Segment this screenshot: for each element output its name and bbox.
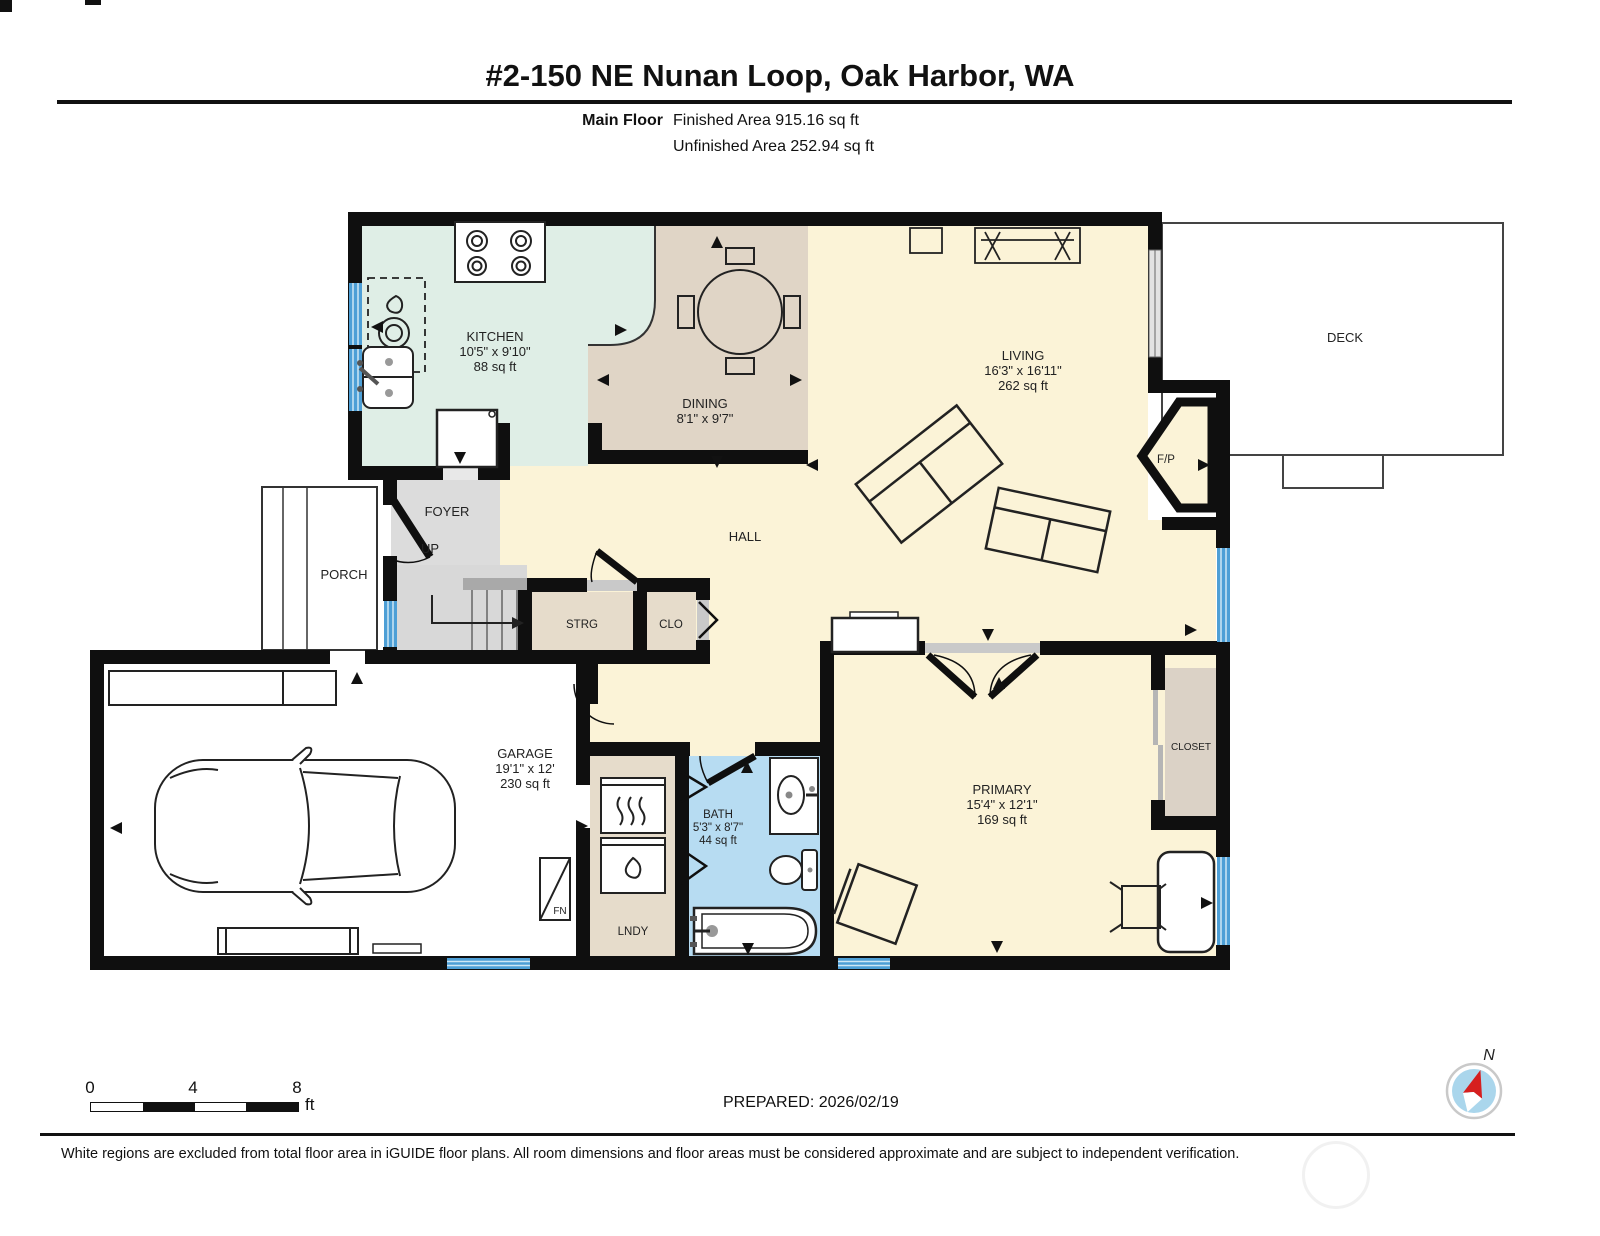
fireplace-bay (1142, 402, 1212, 508)
dining-dims: 8'1" x 9'7" (677, 411, 734, 426)
garage-area: 230 sq ft (500, 776, 550, 791)
clo-label: CLO (659, 619, 683, 631)
living-area: 262 sq ft (998, 378, 1048, 393)
washer-icon (601, 838, 665, 893)
watermark-circle (1302, 1141, 1370, 1209)
garage-contents (109, 671, 570, 954)
shelf-icon (109, 671, 336, 705)
workbench-icon (218, 928, 358, 954)
porch-label: PORCH (321, 567, 368, 582)
footer-rule (40, 1133, 1515, 1136)
sink-icon (357, 347, 413, 408)
dryer-icon (601, 778, 665, 833)
living-label: LIVING (1002, 348, 1045, 363)
stairs-floor (391, 565, 527, 650)
scale-unit: ft (305, 1095, 314, 1115)
bath-dims: 5'3" x 8'7" (693, 822, 743, 834)
kitchen-label: KITCHEN (466, 329, 523, 344)
disclaimer-text: White regions are excluded from total fl… (61, 1146, 1361, 1162)
fireplace-label: F/P (1157, 454, 1175, 466)
up-label: UP (421, 541, 439, 556)
dresser-icon (832, 612, 918, 652)
dining-label: DINING (682, 396, 728, 411)
doormat-icon (373, 944, 421, 953)
compass: N (1447, 1047, 1501, 1118)
car-icon (155, 748, 455, 905)
lndy-label: LNDY (618, 926, 649, 938)
primary-dims: 15'4" x 12'1" (966, 797, 1038, 812)
scale-tick-4: 4 (173, 1078, 213, 1098)
stair-landing (463, 578, 527, 590)
scale-bar (90, 1102, 299, 1112)
garage-label: GARAGE (497, 746, 553, 761)
kitchen-dims: 10'5" x 9'10" (459, 344, 531, 359)
bath-area: 44 sq ft (699, 835, 738, 847)
furnace-label: FN (553, 906, 566, 917)
compass-north-label: N (1483, 1047, 1495, 1064)
stove-icon (455, 222, 545, 282)
vanity-sink-icon (770, 758, 818, 834)
bath-label: BATH (703, 809, 733, 821)
bathtub-icon (690, 908, 816, 954)
foyer-label: FOYER (425, 504, 470, 519)
deck-step (1283, 455, 1383, 488)
sliding-glass-door (1149, 250, 1161, 357)
floor-plan-page: #2-150 NE Nunan Loop, Oak Harbor, WA Mai… (0, 0, 1600, 1236)
strg-label: STRG (566, 619, 598, 631)
scale-tick-0: 0 (70, 1078, 110, 1098)
hall-label: HALL (729, 529, 762, 544)
floor-plan-svg: KITCHEN 10'5" x 9'10" 88 sq ft DINING 8'… (0, 0, 1600, 1236)
prepared-date: PREPARED: 2026/02/19 (723, 1094, 899, 1112)
deck-label: DECK (1327, 330, 1363, 345)
fridge-icon (437, 410, 497, 467)
closet-label: CLOSET (1171, 742, 1211, 753)
primary-area: 169 sq ft (977, 812, 1027, 827)
kitchen-area: 88 sq ft (474, 359, 517, 374)
living-dims: 16'3" x 16'11" (984, 363, 1062, 378)
garage-dims: 19'1" x 12' (495, 761, 554, 776)
primary-label: PRIMARY (973, 782, 1032, 797)
